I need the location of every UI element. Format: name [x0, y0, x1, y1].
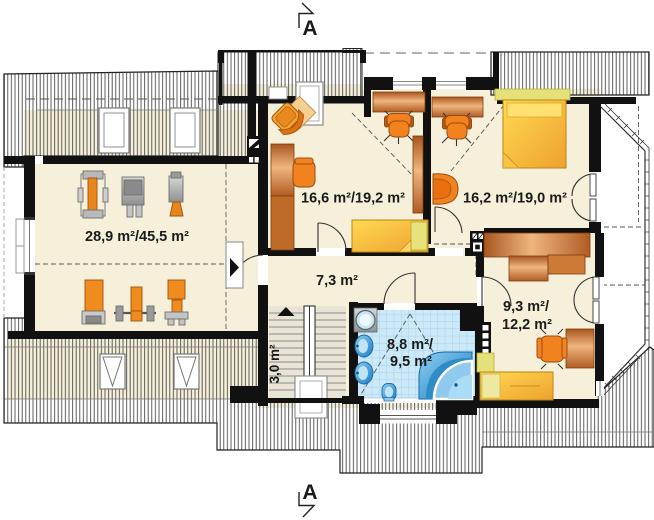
svg-text:8,8 m²/: 8,8 m²/ [387, 337, 433, 353]
svg-text:9,3 m²/: 9,3 m²/ [503, 299, 549, 315]
svg-text:16,6 m²/19,2 m²: 16,6 m²/19,2 m² [301, 191, 405, 207]
svg-text:A: A [302, 17, 317, 40]
svg-text:28,9 m²/45,5 m²: 28,9 m²/45,5 m² [85, 229, 189, 245]
svg-text:12,2 m²: 12,2 m² [502, 317, 552, 333]
svg-text:A: A [302, 481, 317, 504]
svg-text:16,2 m²/19,0 m²: 16,2 m²/19,0 m² [463, 191, 567, 207]
svg-text:3,0 m²: 3,0 m² [267, 344, 282, 384]
svg-text:9,5 m²: 9,5 m² [390, 354, 432, 370]
svg-text:7,3 m²: 7,3 m² [316, 273, 358, 289]
